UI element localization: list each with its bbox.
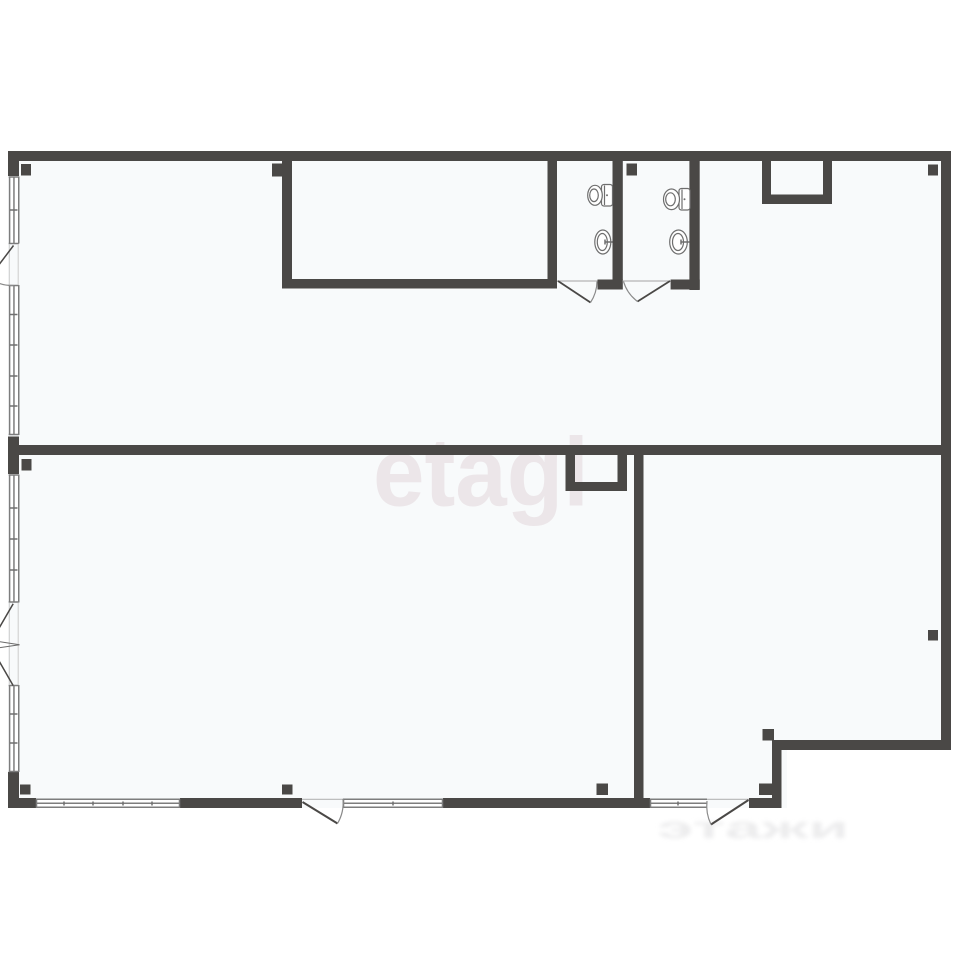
svg-text:этажи: этажи	[657, 810, 849, 845]
svg-text:etagi: etagi	[373, 418, 589, 527]
